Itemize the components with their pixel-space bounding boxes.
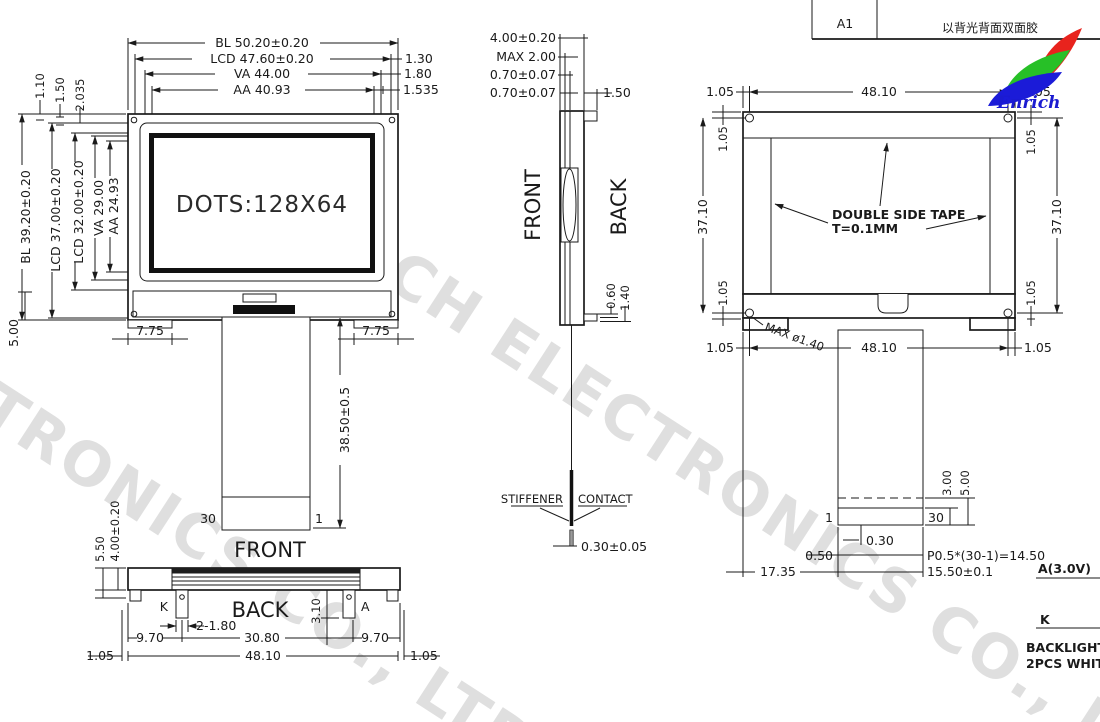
dim-970-left: 9.70	[136, 630, 164, 645]
side-bottom-pin	[584, 314, 597, 321]
revision-note: 以背光背面双面胶	[942, 20, 1038, 35]
dim-back-top-left: 1.05	[706, 84, 734, 99]
dim-offset-180: 1.80	[404, 66, 432, 81]
dim-back-bot-width: 48.10	[861, 340, 897, 355]
dim-back-height-right: 37.10	[1049, 199, 1064, 235]
backlight-circuit: A(3.0V) K BACKLIGHT 2PCS WHITE	[1026, 561, 1100, 671]
front-hole-tl	[131, 117, 137, 123]
back-hole-tl	[746, 114, 754, 122]
dim-edge-050: 0.50	[805, 548, 833, 563]
side-view: 4.00±0.20 MAX 2.00 0.70±0.07 0.70±0.07 1…	[490, 30, 647, 554]
front-hole-br	[389, 311, 395, 317]
dim-corner-br: 1.05	[1024, 280, 1038, 306]
front-ic-strip	[233, 305, 295, 314]
dim-pin-width: 0.30	[866, 533, 894, 548]
dim-foot-right: 7.75	[362, 323, 390, 338]
dim-corner-tr: 1.05	[1024, 129, 1038, 155]
stiffener-label: STIFFENER	[501, 492, 563, 506]
back-pin-1: 1	[825, 510, 833, 525]
dim-pitch: P0.5*(30-1)=14.50	[927, 548, 1045, 563]
dim-strip-300: 3.00	[940, 470, 954, 496]
dim-pin-140: 1.40	[618, 285, 632, 311]
dim-strip-500: 5.00	[958, 470, 972, 496]
dim-corner-tl: 1.05	[716, 126, 730, 152]
hole-size-note: MAX ø1.40	[763, 320, 826, 354]
dim-max-thickness: MAX 2.00	[496, 49, 556, 64]
bottom-foot-left	[130, 590, 141, 601]
back-fpc	[838, 330, 923, 525]
dim-profile-400: 4.00±0.20	[108, 501, 122, 562]
dim-corner-bl: 1.05	[716, 280, 730, 306]
front-fpc	[222, 317, 310, 530]
front-hole-tr	[389, 117, 395, 123]
engineering-drawing: ENRICH ELECTRONICS CO., LTD ENRICH ELECT…	[0, 0, 1100, 722]
dim-pin-060: 0.60	[604, 283, 618, 309]
dim-va-width: VA 44.00	[234, 66, 290, 81]
dim-offset-130: 1.30	[405, 51, 433, 66]
dim-aa-width: AA 40.93	[233, 82, 290, 97]
back-body	[743, 112, 1015, 294]
tape-note-line1: DOUBLE SIDE TAPE	[832, 207, 965, 222]
dim-offset-150: 1.50	[53, 77, 67, 103]
dim-offset-2035: 2.035	[73, 79, 87, 112]
dim-970-right: 9.70	[361, 630, 389, 645]
dim-foot-left: 7.75	[136, 323, 164, 338]
front-view-label: FRONT	[234, 538, 306, 562]
dim-offset-1535: 1.535	[403, 82, 439, 97]
side-lens-housing	[561, 168, 578, 242]
dim-profile-550: 5.50	[93, 536, 107, 562]
back-hole-bl	[746, 309, 754, 317]
dim-tab-depth: 3.10	[309, 598, 323, 624]
front-pin-30: 30	[200, 511, 216, 526]
dim-1550: 15.50±0.1	[927, 564, 993, 579]
front-display-text: DOTS:128X64	[176, 192, 348, 218]
a-pin-label: A	[361, 599, 370, 614]
front-slot	[243, 294, 276, 302]
back-pin-30: 30	[928, 510, 944, 525]
back-hole-br	[1004, 309, 1012, 317]
backlight-note-line1: BACKLIGHT	[1026, 640, 1100, 655]
back-notch	[878, 294, 908, 313]
dim-backlight-ledge: 5.00	[6, 319, 21, 347]
front-pin-1: 1	[315, 511, 323, 526]
dim-back-top-width: 48.10	[861, 84, 897, 99]
anode-label: A(3.0V)	[1038, 561, 1091, 576]
bottom-glass-top	[172, 568, 360, 574]
tape-note-line2: T=0.1MM	[832, 221, 898, 236]
front-hole-bl	[131, 311, 137, 317]
dim-lcd-height-37: LCD 37.00±0.20	[48, 168, 63, 271]
logo-text: Enrich	[996, 93, 1060, 113]
k-pin-label: K	[160, 599, 169, 614]
dim-lcd-height-32: LCD 32.00±0.20	[71, 160, 86, 263]
contact-label: CONTACT	[578, 492, 634, 506]
revision-table: A1 以背光背面双面胶	[812, 0, 1100, 39]
dim-105-right: 1.05	[410, 648, 438, 663]
cathode-label: K	[1040, 612, 1051, 627]
back-hole-tr	[1004, 114, 1012, 122]
revision-code: A1	[837, 16, 854, 31]
side-top-tab	[584, 111, 597, 121]
dim-aa-height: AA 24.93	[106, 177, 121, 234]
dim-glass-2: 0.70±0.07	[490, 85, 556, 100]
dim-4810: 48.10	[245, 648, 281, 663]
bottom-back-label: BACK	[232, 598, 290, 622]
dim-105-left: 1.05	[86, 648, 114, 663]
dim-tab-150: 1.50	[603, 85, 631, 100]
dim-contact-030: 0.30±0.05	[581, 539, 647, 554]
logo: Enrich	[988, 28, 1082, 113]
dim-offset-110: 1.10	[33, 73, 47, 99]
dim-glass-1: 0.70±0.07	[490, 67, 556, 82]
dim-total-thickness: 4.00±0.20	[490, 30, 556, 45]
side-view-dimensions-top: 4.00±0.20 MAX 2.00 0.70±0.07 0.70±0.07 1…	[490, 30, 631, 110]
side-front-label: FRONT	[521, 169, 545, 241]
dim-1735: 17.35	[760, 564, 796, 579]
dim-fpc-length: 38.50±0.5	[337, 387, 352, 453]
dim-back-bot-right: 1.05	[1024, 340, 1052, 355]
side-contact-tail	[570, 530, 573, 546]
dim-back-bot-left: 1.05	[706, 340, 734, 355]
dim-lcd-width: LCD 47.60±0.20	[210, 51, 313, 66]
side-view-contact-callout: STIFFENER CONTACT 0.30±0.05	[501, 492, 647, 554]
dim-va-height: VA 29.00	[91, 180, 106, 236]
dim-tab-holes: 2-1.80	[196, 618, 236, 633]
dim-bl-height: BL 39.20±0.20	[18, 170, 33, 264]
bottom-view-dimensions-left: 5.50 4.00±0.20	[93, 501, 126, 598]
dim-back-height-left: 37.10	[695, 199, 710, 235]
dim-3080: 30.80	[244, 630, 280, 645]
dim-bl-width: BL 50.20±0.20	[215, 35, 309, 50]
side-back-label: BACK	[607, 177, 631, 235]
backlight-note-line2: 2PCS WHITE	[1026, 656, 1100, 671]
bottom-foot-right	[387, 590, 398, 601]
